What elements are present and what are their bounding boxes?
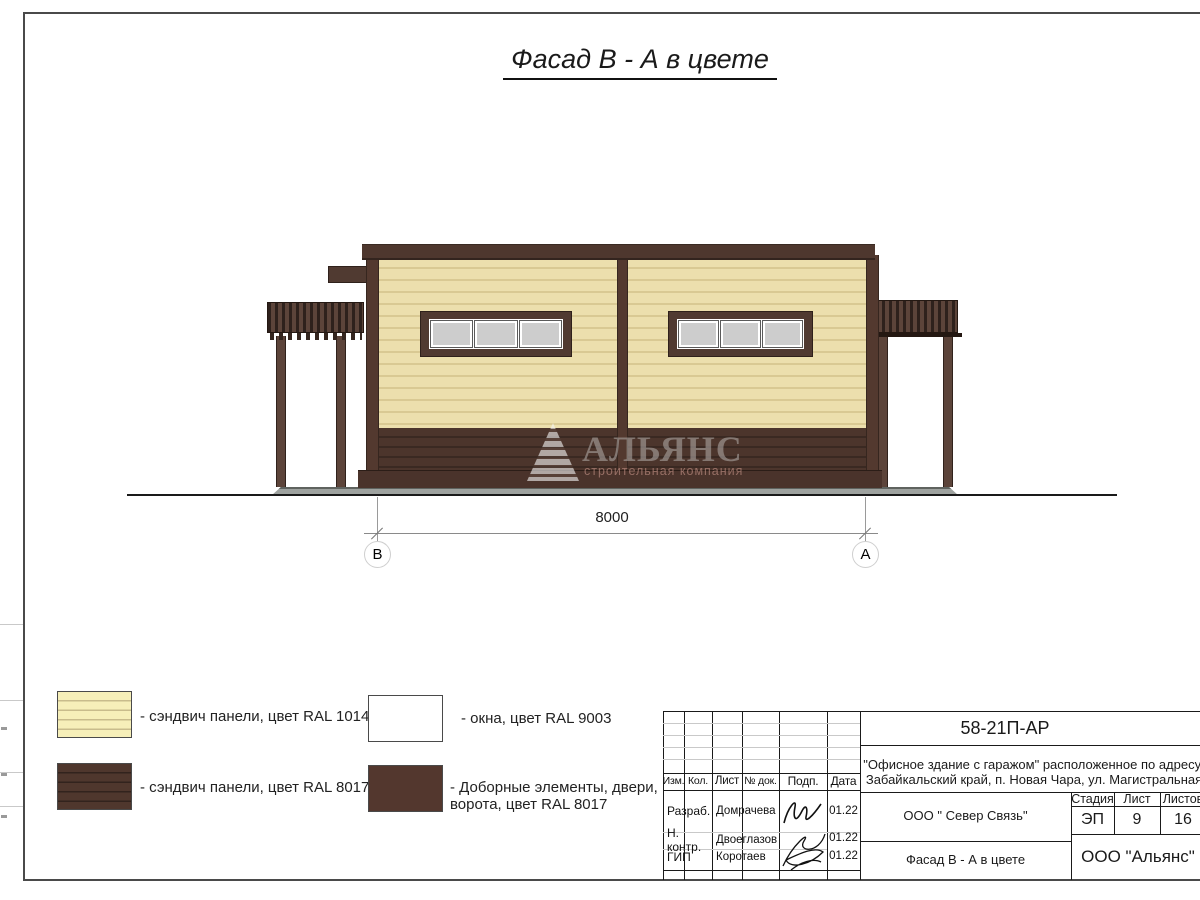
col-header-data: Дата — [827, 773, 860, 790]
canopy-left-fringe — [270, 333, 362, 340]
corner-pillar-right — [866, 255, 879, 470]
legend-label: - сэндвич панели, цвет RAL 1014 — [140, 708, 369, 725]
page-title-text: Фасад В - А в цвете — [503, 44, 777, 80]
canopy-right-fringe — [872, 333, 962, 337]
frame-top — [23, 12, 1200, 14]
grid-line — [663, 870, 860, 871]
signer-name: Домрачева — [716, 794, 778, 830]
canopy-right-post-1 — [878, 336, 888, 487]
sheet-value: 9 — [1114, 806, 1160, 834]
legend-swatch-brown-solid — [368, 765, 443, 812]
signer-name: Коротаев — [716, 849, 780, 867]
window-pane — [763, 321, 802, 347]
canopy-left-roof — [267, 302, 364, 333]
margin-line — [0, 806, 23, 807]
window-pane — [475, 321, 516, 347]
signer-date: 01.22 — [827, 830, 860, 847]
dimension-line — [364, 533, 878, 534]
stage-value: ЭП — [1071, 806, 1114, 834]
window-pane — [721, 321, 760, 347]
stage-label: Стадия — [1071, 792, 1114, 806]
margin-line — [0, 700, 23, 701]
signer-date: 01.22 — [827, 794, 860, 830]
axis-marker-a: А — [852, 541, 879, 568]
corner-pillar-left — [366, 255, 379, 470]
window-pane — [431, 321, 472, 347]
signer-date: 01.22 — [827, 848, 860, 865]
window-left-inner — [429, 319, 563, 349]
doc-code: 58-21П-АР — [860, 711, 1150, 745]
col-header-izm: Изм. — [663, 773, 684, 790]
signature-icon — [779, 826, 829, 872]
watermark-subtitle: строительная компания — [584, 464, 743, 478]
eave-beam — [328, 266, 370, 283]
grid-line — [860, 745, 1200, 746]
sheet-label: Лист — [1114, 792, 1160, 806]
roof-band — [362, 244, 875, 260]
drawing-name: Фасад В - А в цвете — [860, 841, 1071, 880]
legend-label: - окна, цвет RAL 9003 — [461, 710, 611, 727]
legend-swatch-brown-striped — [57, 763, 132, 810]
page-title: Фасад В - А в цвете — [455, 44, 825, 80]
sheets-value: 16 — [1160, 806, 1200, 834]
ground-line — [127, 494, 1117, 496]
grid-line — [663, 759, 860, 760]
grid-line — [663, 735, 860, 736]
signer-role: Н. контр. — [667, 832, 715, 849]
col-header-doc: № док. — [742, 773, 779, 790]
plinth-left — [377, 428, 617, 470]
window-right-inner — [677, 319, 804, 349]
company-name: ООО "Альянс" — [1071, 834, 1200, 880]
signer-role: Разраб. — [667, 794, 713, 830]
project-address: "Офисное здание с гаражом" расположенное… — [858, 755, 1200, 791]
extension-line-right — [865, 497, 866, 542]
sheets-label: Листов — [1160, 792, 1200, 806]
window-pane — [520, 321, 561, 347]
project-address-line1: "Офисное здание с гаражом" расположенное… — [863, 758, 1200, 773]
contractor-name: ООО " Север Связь" — [860, 792, 1071, 841]
dimension-value: 8000 — [582, 508, 642, 528]
canopy-right-roof — [874, 300, 958, 333]
margin-mark — [1, 773, 7, 776]
frame-left — [23, 12, 25, 881]
legend-swatch-white — [368, 695, 443, 742]
col-header-kol: Кол. — [684, 773, 712, 790]
col-header-list: Лист — [712, 773, 742, 790]
window-right — [668, 311, 813, 357]
legend-label: - сэндвич панели, цвет RAL 8017 — [140, 779, 369, 796]
canopy-left-post-1 — [276, 336, 286, 487]
legend-swatch-cream — [57, 691, 132, 738]
grid-line — [663, 711, 664, 880]
drawing-sheet: { "page": { "title": "Фасад В - А в цвет… — [0, 0, 1200, 900]
canopy-right-post-2 — [943, 336, 953, 487]
grid-line — [663, 723, 860, 724]
legend-label: - Доборные элементы, двери, ворота, цвет… — [450, 779, 695, 813]
margin-mark — [1, 815, 7, 818]
axis-marker-b: В — [364, 541, 391, 568]
margin-line — [0, 624, 23, 625]
grid-line — [663, 790, 860, 791]
project-address-line2: Забайкальский край, п. Новая Чара, ул. М… — [866, 773, 1200, 788]
extension-line-left — [377, 497, 378, 542]
signer-role: ГИП — [667, 849, 715, 867]
margin-mark — [1, 727, 7, 730]
window-left — [420, 311, 572, 357]
signer-name: Двоеглазов — [716, 832, 780, 849]
grid-line — [663, 747, 860, 748]
window-pane — [679, 321, 718, 347]
canopy-left-post-2 — [336, 336, 346, 487]
col-header-podp: Подп. — [779, 773, 827, 790]
